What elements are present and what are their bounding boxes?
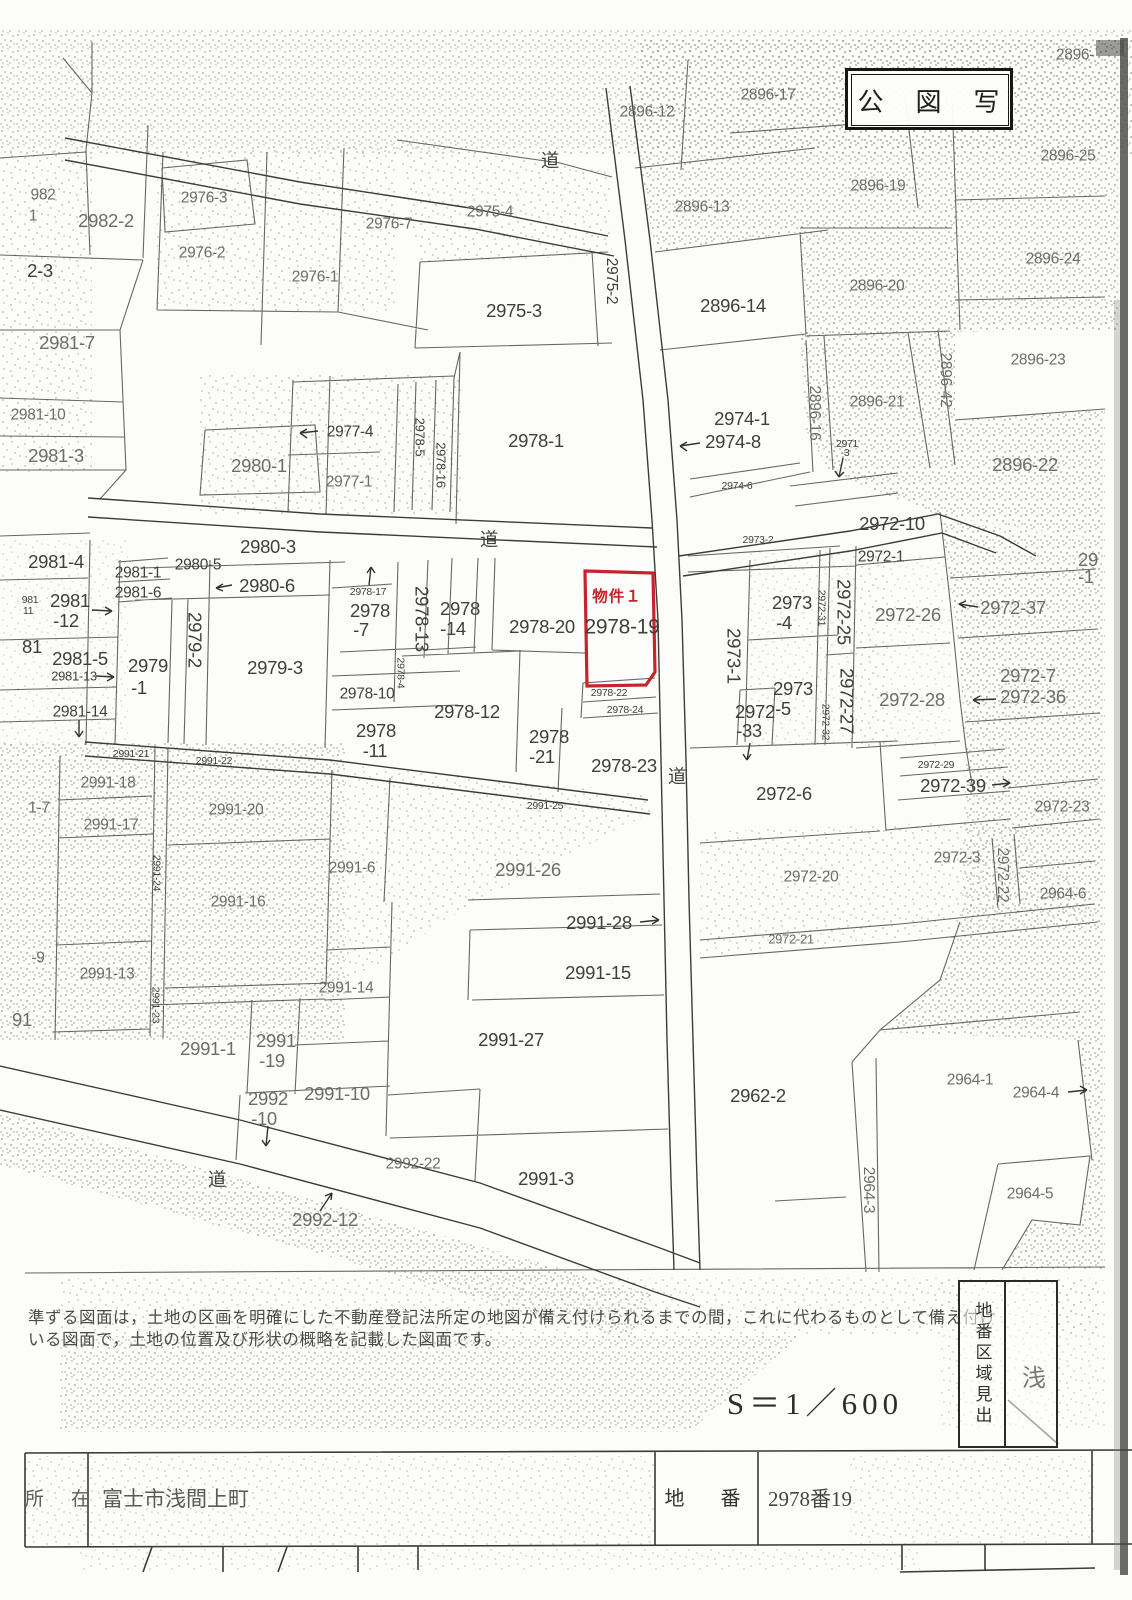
partial-character: 浅 — [1022, 1358, 1046, 1393]
map-note-line1: 準ずる図面は，土地の区画を明確にした不動産登記法所定の地図が備え付けられるまでの… — [28, 1304, 997, 1328]
table-location-label: 所 在 — [25, 1455, 88, 1544]
title-text: 公 図 写 — [851, 74, 1009, 126]
index-tab-column: 地番区域見出 — [960, 1282, 1006, 1446]
cadastral-map-page: 2896-2896-172896-122896-25道2896-192896-1… — [0, 0, 1132, 1600]
table-location-value: 富士市浅間上町 — [102, 1455, 249, 1544]
map-note-line2: いる図面で，土地の位置及び形状の概略を記載した図面です。 — [28, 1326, 502, 1350]
index-tab-text: 地番区域見出 — [970, 1301, 995, 1427]
table-lot-value: 2978番19 — [768, 1455, 852, 1544]
table-lot-label: 地 番 — [655, 1455, 758, 1544]
scale-text: S＝1／600 — [700, 1378, 930, 1423]
highlight-outline — [585, 571, 655, 686]
title-box: 公 図 写 — [845, 68, 1013, 130]
